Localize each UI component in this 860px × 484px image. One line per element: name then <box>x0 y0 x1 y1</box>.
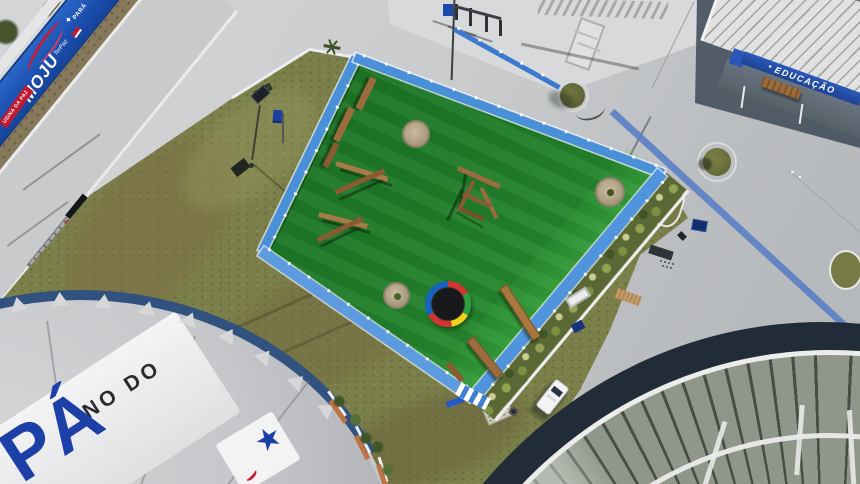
planter-pot <box>509 407 518 416</box>
banner-flag-mark <box>71 27 82 39</box>
exercise-bar-pole <box>499 20 502 36</box>
sapling <box>394 293 401 300</box>
trampoline-mat <box>431 287 465 321</box>
solar-light-base <box>249 163 254 168</box>
kiosk-logo-star-icon: ✦ <box>766 63 773 71</box>
tree-ring <box>402 120 430 148</box>
banner-gov-label: PARÁ <box>72 3 88 21</box>
tree-ring <box>383 282 410 309</box>
sapling <box>607 189 614 196</box>
tree-shadow <box>698 158 712 170</box>
flag-pole-small <box>282 113 284 143</box>
white-speck <box>799 176 801 178</box>
tent-flag-mark <box>243 467 258 483</box>
flag-small <box>273 110 283 124</box>
van-roof-stripe <box>546 394 557 403</box>
flag <box>443 4 453 16</box>
exercise-bar-pole <box>485 14 488 32</box>
grass-pocket <box>829 250 860 290</box>
tree-ring <box>595 177 625 207</box>
van-windshield <box>551 386 563 398</box>
aerial-photo: ✦ EDUCAÇÃO MOJU USINA DA PAZ TerPaz ✦ PA… <box>0 0 860 484</box>
drain-dots <box>660 260 662 262</box>
info-sign <box>691 219 708 232</box>
